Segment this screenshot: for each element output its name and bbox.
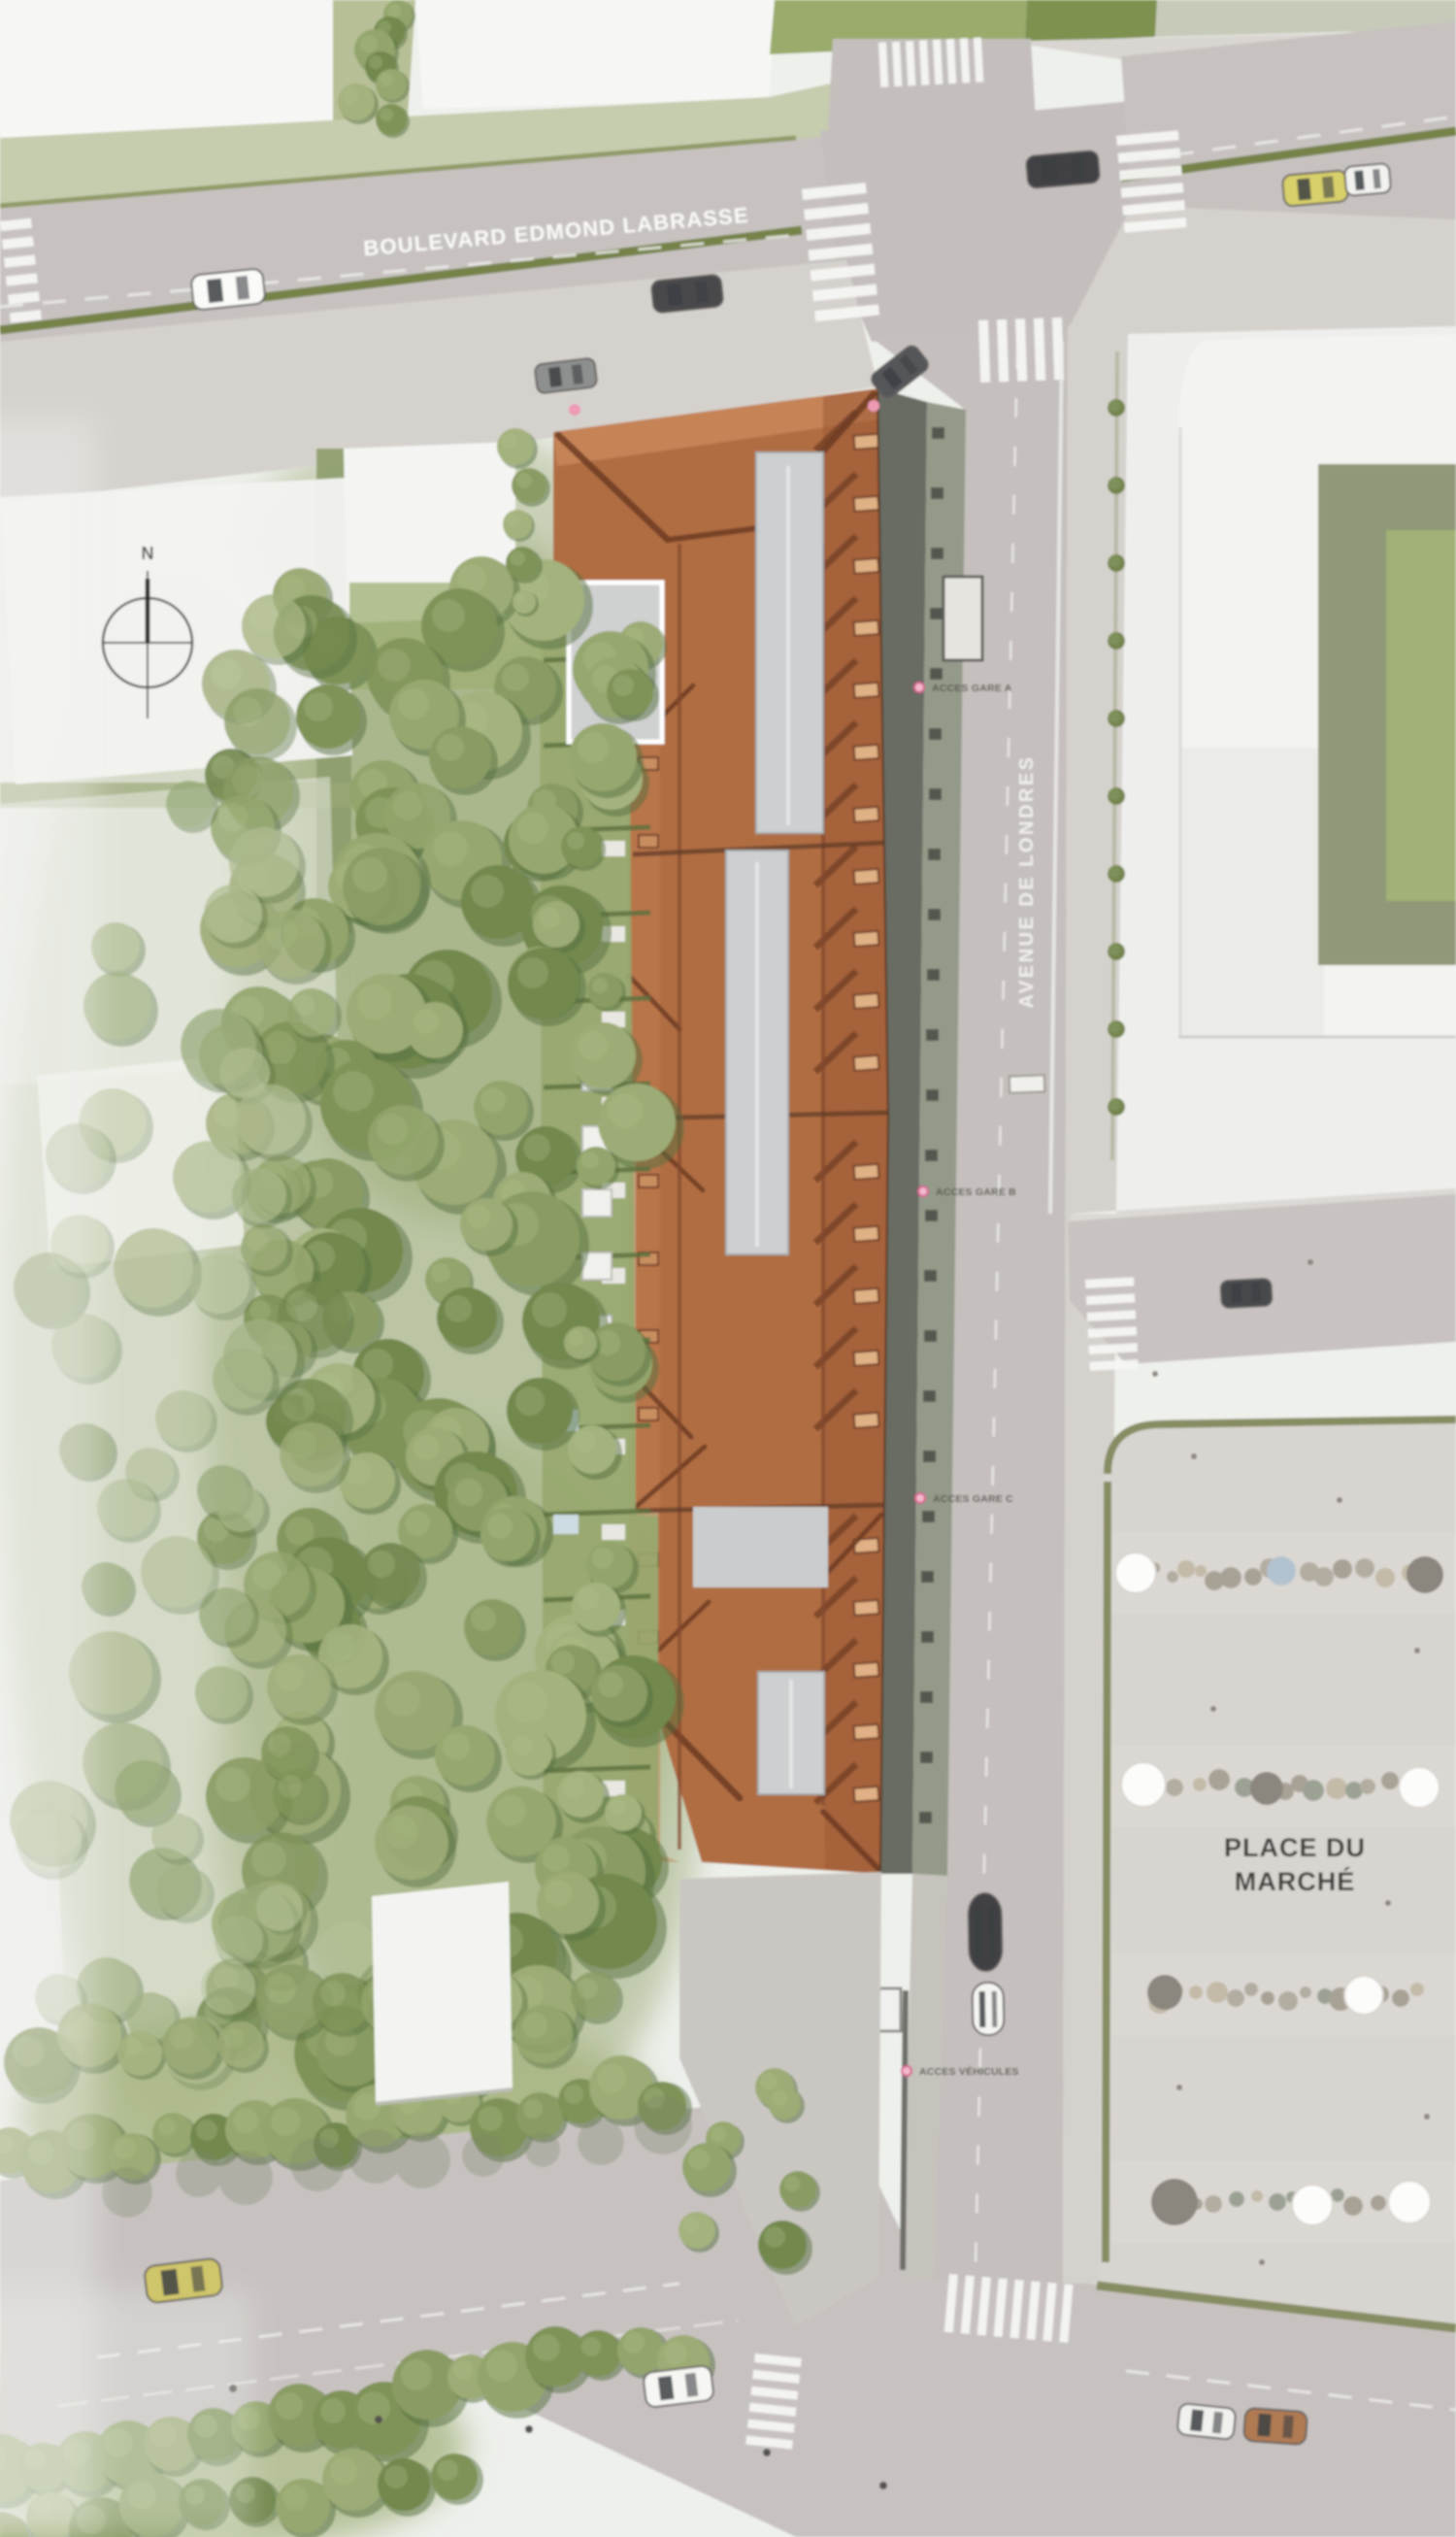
svg-text:ACCES GARE C: ACCES GARE C: [933, 1493, 1013, 1505]
svg-text:ACCES GARE A: ACCES GARE A: [932, 683, 1012, 694]
svg-text:MARCHÉ: MARCHÉ: [1235, 1866, 1356, 1896]
svg-text:AVENUE DE LONDRES: AVENUE DE LONDRES: [1016, 754, 1038, 1008]
svg-text:PLACE DU: PLACE DU: [1224, 1833, 1366, 1862]
svg-text:ACCES GARE B: ACCES GARE B: [936, 1186, 1016, 1198]
svg-text:N: N: [142, 544, 154, 563]
svg-text:ACCES VÉHICULES: ACCES VÉHICULES: [919, 2065, 1019, 2078]
